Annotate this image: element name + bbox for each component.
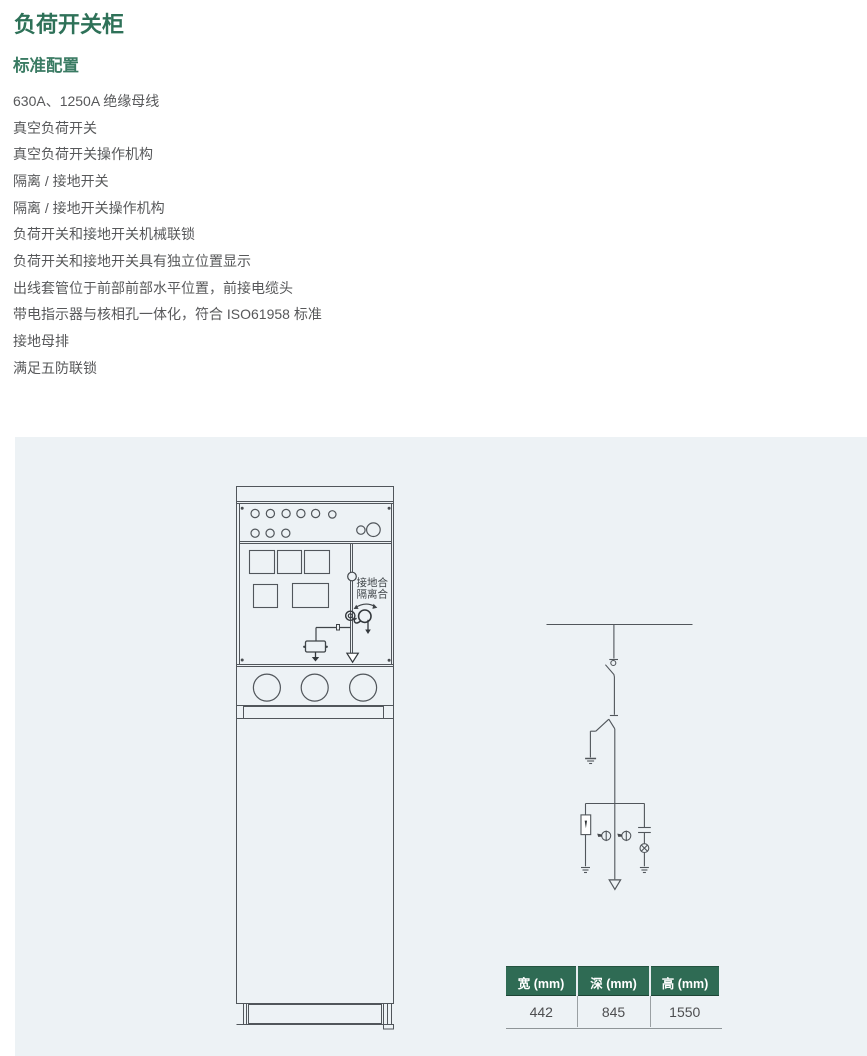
svg-text:接地合: 接地合	[357, 576, 389, 589]
svg-text:隔离合: 隔离合	[357, 588, 389, 601]
